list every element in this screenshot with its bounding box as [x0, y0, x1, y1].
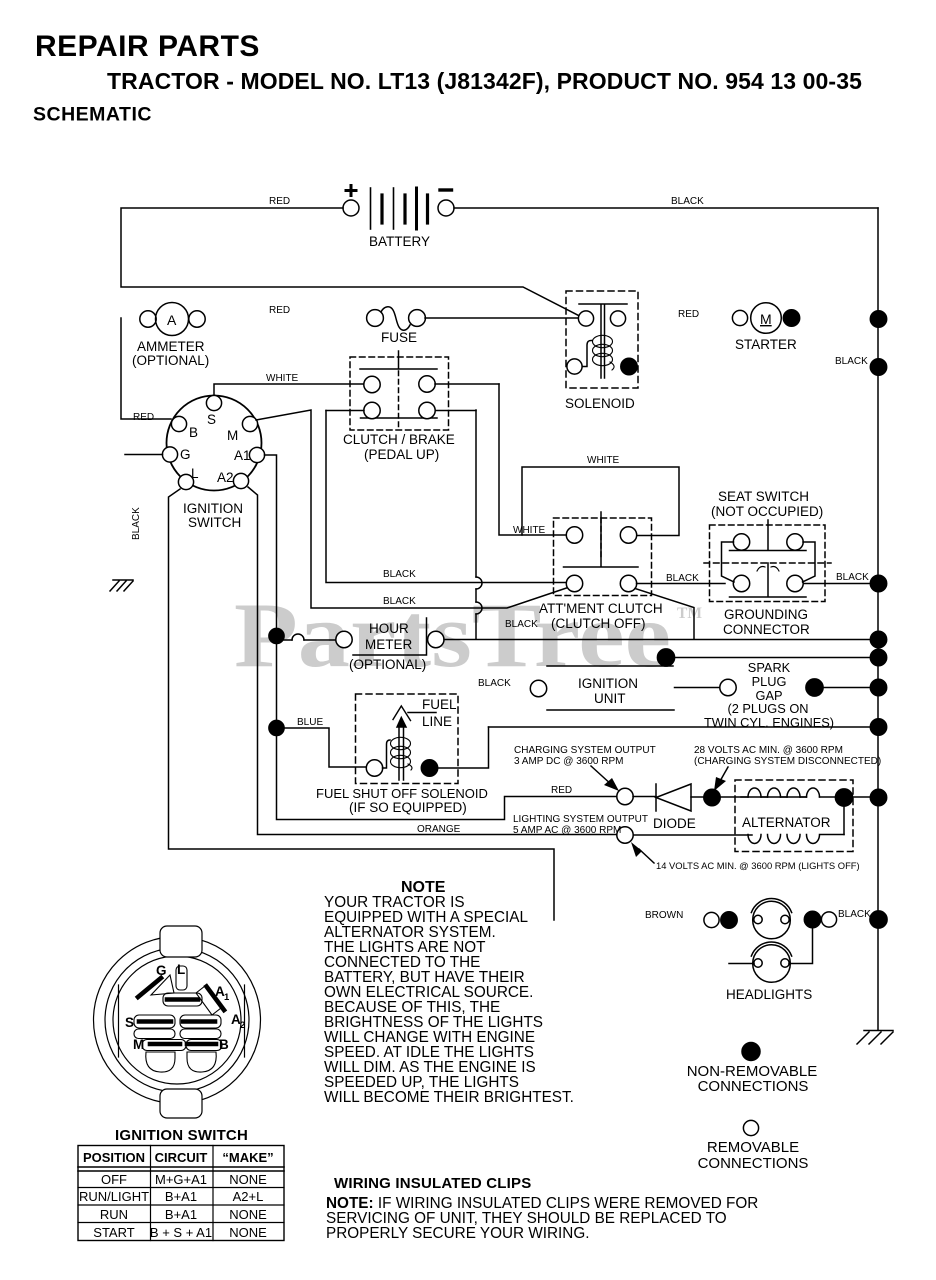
svg-text:SOLENOID: SOLENOID	[565, 396, 635, 411]
svg-text:(2 PLUGS ON: (2 PLUGS ON	[727, 701, 808, 716]
svg-text:NONE: NONE	[229, 1207, 267, 1222]
svg-text:RUN/LIGHT: RUN/LIGHT	[79, 1189, 149, 1204]
svg-text:G: G	[180, 447, 191, 462]
svg-text:A1: A1	[234, 448, 251, 463]
svg-text:SWITCH: SWITCH	[188, 515, 241, 530]
svg-text:(CLUTCH OFF): (CLUTCH OFF)	[551, 616, 646, 631]
svg-text:(OPTIONAL): (OPTIONAL)	[132, 353, 209, 368]
svg-text:UNIT: UNIT	[594, 691, 626, 706]
svg-text:RUN: RUN	[100, 1207, 128, 1222]
svg-text:BLACK: BLACK	[383, 596, 416, 607]
svg-text:CHARGING SYSTEM OUTPUT: CHARGING SYSTEM OUTPUT	[514, 745, 656, 756]
svg-text:SCHEMATIC: SCHEMATIC	[33, 104, 152, 126]
svg-text:A2+L: A2+L	[233, 1189, 264, 1204]
svg-text:5 AMP AC @ 3600 RPM: 5 AMP AC @ 3600 RPM	[513, 825, 621, 836]
svg-text:S: S	[125, 1015, 134, 1030]
svg-text:2: 2	[240, 1020, 245, 1031]
svg-text:CLUTCH / BRAKE: CLUTCH / BRAKE	[343, 432, 455, 447]
svg-text:BLACK: BLACK	[478, 678, 511, 689]
svg-text:(PEDAL UP): (PEDAL UP)	[364, 447, 439, 462]
svg-text:DIODE: DIODE	[653, 816, 696, 831]
svg-text:LIGHTING SYSTEM OUTPUT: LIGHTING SYSTEM OUTPUT	[513, 814, 648, 825]
svg-text:WHITE: WHITE	[513, 525, 546, 536]
svg-text:IGNITION: IGNITION	[183, 501, 243, 516]
svg-text:METER: METER	[365, 637, 413, 652]
svg-text:POSITION: POSITION	[83, 1150, 145, 1165]
svg-text:B+A1: B+A1	[165, 1207, 197, 1222]
svg-text:CONNECTOR: CONNECTOR	[723, 622, 810, 637]
svg-text:LINE: LINE	[422, 714, 452, 729]
svg-text:RED: RED	[269, 305, 290, 316]
svg-text:BLACK: BLACK	[131, 507, 142, 540]
svg-text:ATT'MENT CLUTCH: ATT'MENT CLUTCH	[539, 601, 663, 616]
svg-text:ORANGE: ORANGE	[417, 824, 461, 835]
svg-text:BLACK: BLACK	[835, 356, 868, 367]
svg-text:GROUNDING: GROUNDING	[724, 607, 808, 622]
svg-text:BLACK: BLACK	[671, 196, 704, 207]
svg-text:CIRCUIT: CIRCUIT	[155, 1150, 208, 1165]
svg-text:3 AMP DC @ 3600 RPM: 3 AMP DC @ 3600 RPM	[514, 756, 623, 767]
svg-text:WHITE: WHITE	[587, 455, 620, 466]
svg-text:BLACK: BLACK	[836, 572, 869, 583]
svg-text:“MAKE”: “MAKE”	[222, 1150, 273, 1165]
svg-text:B + S + A1: B + S + A1	[150, 1225, 212, 1240]
svg-text:M: M	[760, 311, 772, 327]
svg-text:BLACK: BLACK	[383, 569, 416, 580]
svg-text:FUEL: FUEL	[422, 697, 457, 712]
svg-text:REMOVABLE: REMOVABLE	[707, 1139, 799, 1156]
svg-text:WHITE: WHITE	[266, 373, 299, 384]
svg-text:SEAT SWITCH: SEAT SWITCH	[718, 489, 809, 504]
svg-text:TM: TM	[677, 605, 702, 622]
svg-text:A2: A2	[217, 470, 234, 485]
svg-text:(IF SO EQUIPPED): (IF SO EQUIPPED)	[349, 800, 467, 815]
svg-text:STARTER: STARTER	[735, 337, 797, 352]
svg-text:NONE: NONE	[229, 1172, 267, 1187]
svg-text:RED: RED	[678, 309, 699, 320]
svg-text:(OPTIONAL): (OPTIONAL)	[349, 657, 426, 672]
svg-text:PartsTree: PartsTree	[234, 584, 671, 686]
svg-text:RED: RED	[551, 785, 572, 796]
svg-text:FUEL SHUT OFF SOLENOID: FUEL SHUT OFF SOLENOID	[316, 786, 488, 801]
svg-text:B+A1: B+A1	[165, 1189, 197, 1204]
svg-text:M+G+A1: M+G+A1	[155, 1172, 207, 1187]
svg-text:RED: RED	[269, 196, 290, 207]
svg-text:HEADLIGHTS: HEADLIGHTS	[726, 987, 812, 1002]
svg-text:TRACTOR - MODEL NO. LT13 (J813: TRACTOR - MODEL NO. LT13 (J81342F), PROD…	[107, 68, 862, 94]
svg-text:WIRING INSULATED CLIPS: WIRING INSULATED CLIPS	[334, 1175, 531, 1192]
svg-text:AMMETER: AMMETER	[137, 339, 205, 354]
svg-text:L: L	[191, 466, 199, 481]
svg-text:NONE: NONE	[229, 1225, 267, 1240]
svg-text:BATTERY: BATTERY	[369, 234, 430, 249]
svg-text:HOUR: HOUR	[369, 621, 409, 636]
svg-text:1: 1	[224, 992, 230, 1003]
svg-text:(CHARGING SYSTEM DISCONNECTED): (CHARGING SYSTEM DISCONNECTED)	[694, 756, 881, 767]
svg-text:CONNECTIONS: CONNECTIONS	[698, 1155, 809, 1172]
svg-text:(NOT OCCUPIED): (NOT OCCUPIED)	[711, 504, 823, 519]
svg-text:M: M	[133, 1037, 144, 1052]
svg-text:START: START	[93, 1225, 134, 1240]
svg-text:M: M	[227, 428, 238, 443]
svg-text:S: S	[207, 412, 216, 427]
svg-text:WILL BECOME THEIR BRIGHTEST.: WILL BECOME THEIR BRIGHTEST.	[324, 1089, 574, 1106]
svg-text:BLACK: BLACK	[838, 909, 871, 920]
svg-text:PLUG: PLUG	[752, 674, 787, 689]
svg-text:L: L	[177, 962, 185, 977]
svg-text:14 VOLTS AC MIN. @ 3600 RPM (L: 14 VOLTS AC MIN. @ 3600 RPM (LIGHTS OFF)	[656, 860, 860, 871]
svg-text:REPAIR PARTS: REPAIR PARTS	[35, 30, 260, 63]
svg-text:B: B	[219, 1037, 229, 1052]
svg-text:BLUE: BLUE	[297, 717, 323, 728]
svg-text:B: B	[189, 425, 198, 440]
svg-text:BLACK: BLACK	[666, 573, 699, 584]
svg-text:PROPERLY SECURE YOUR WIRING.: PROPERLY SECURE YOUR WIRING.	[326, 1225, 590, 1242]
svg-text:CONNECTIONS: CONNECTIONS	[698, 1078, 809, 1095]
svg-text:A: A	[167, 312, 177, 328]
svg-text:BLACK: BLACK	[505, 619, 538, 630]
svg-text:BROWN: BROWN	[645, 910, 683, 921]
svg-text:FUSE: FUSE	[381, 330, 417, 345]
svg-text:OFF: OFF	[101, 1172, 127, 1187]
svg-text:ALTERNATOR: ALTERNATOR	[742, 815, 831, 830]
svg-text:G: G	[156, 963, 167, 978]
svg-text:28 VOLTS AC MIN. @ 3600 RPM: 28 VOLTS AC MIN. @ 3600 RPM	[694, 745, 843, 756]
svg-text:RED: RED	[133, 412, 154, 423]
svg-text:IGNITION: IGNITION	[578, 676, 638, 691]
svg-text:IGNITION SWITCH: IGNITION SWITCH	[115, 1127, 248, 1144]
svg-text:SPARK: SPARK	[748, 660, 791, 675]
